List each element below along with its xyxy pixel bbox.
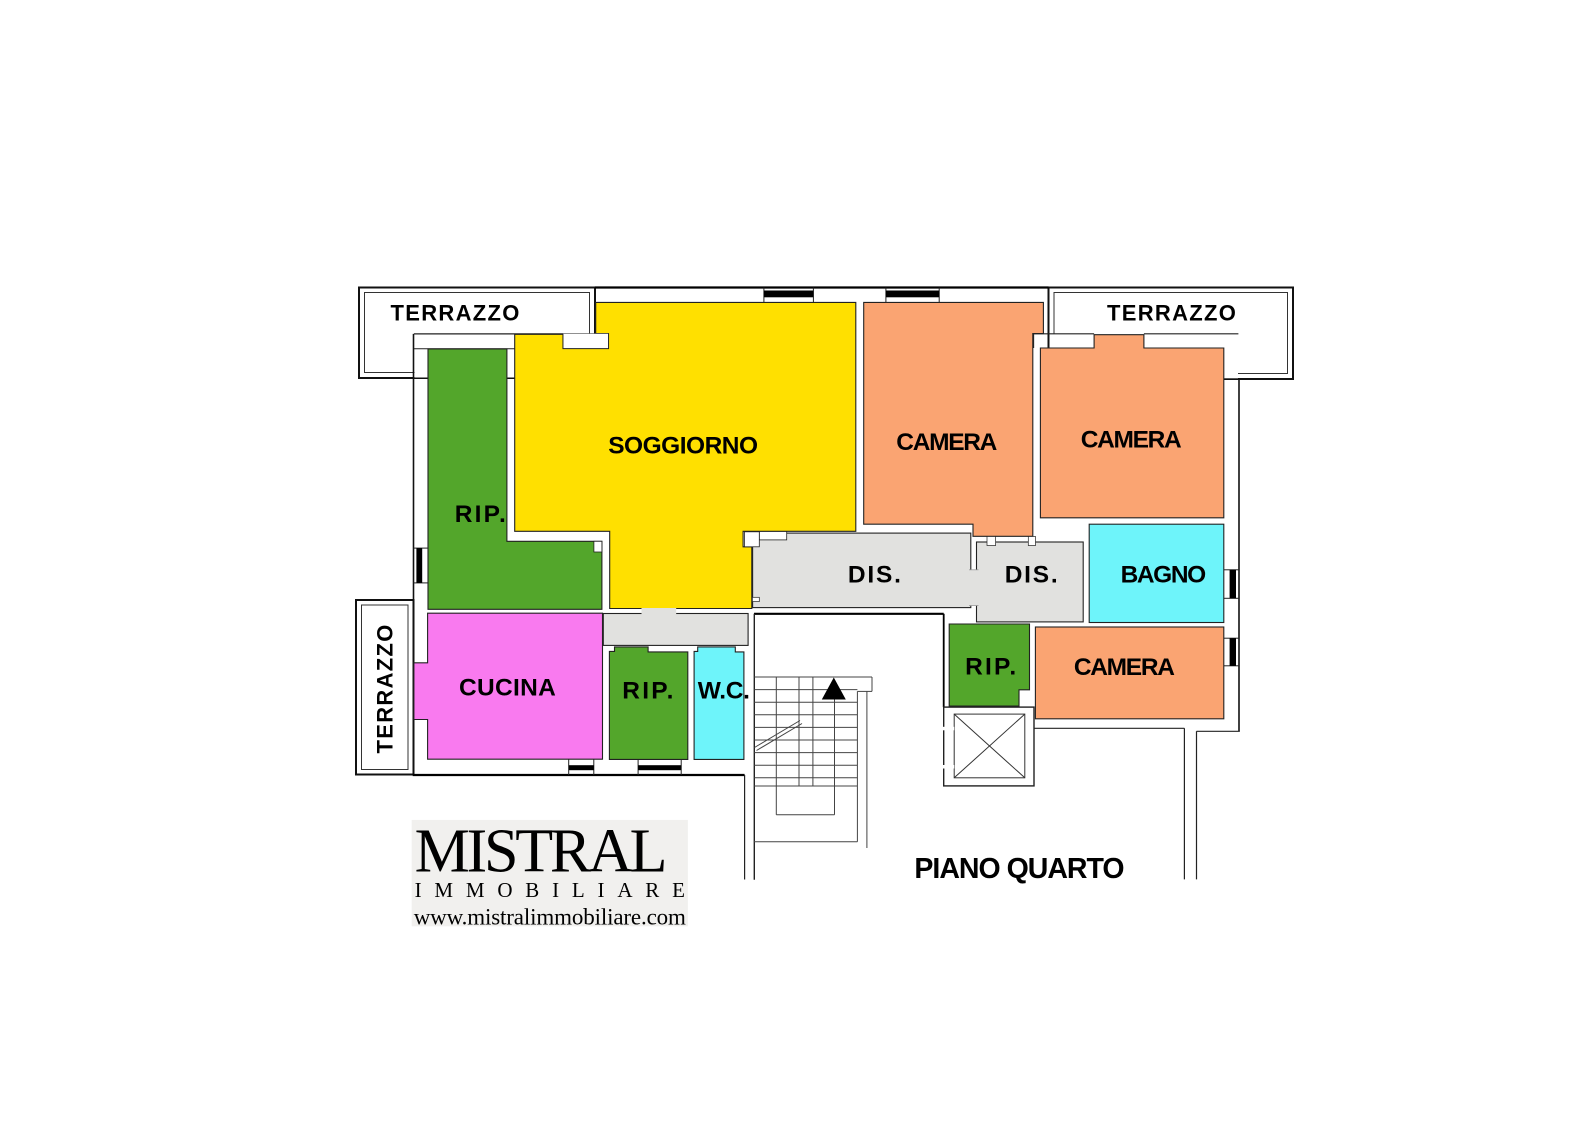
svg-text:TERRAZZO: TERRAZZO [391,301,521,326]
svg-text:PIANO QUARTO: PIANO QUARTO [914,853,1123,885]
svg-text:DIS.: DIS. [1005,562,1060,589]
svg-text:CAMERA: CAMERA [1074,654,1175,681]
svg-text:CAMERA: CAMERA [896,429,997,456]
svg-text:RIP.: RIP. [455,501,508,528]
svg-text:IMMOBILIARE: IMMOBILIARE [415,878,698,902]
svg-text:CUCINA: CUCINA [459,675,556,702]
svg-text:W.C.: W.C. [698,677,750,704]
svg-text:DIS.: DIS. [848,562,903,589]
svg-text:SOGGIORNO: SOGGIORNO [608,433,758,460]
svg-text:RIP.: RIP. [622,677,675,704]
svg-text:TERRAZZO: TERRAZZO [1107,301,1237,326]
svg-text:CAMERA: CAMERA [1081,427,1182,454]
svg-text:RIP.: RIP. [965,654,1018,681]
svg-text:BAGNO: BAGNO [1121,562,1207,589]
svg-text:MISTRAL: MISTRAL [415,818,665,886]
svg-text:www.mistralimmobiliare.com: www.mistralimmobiliare.com [414,905,686,930]
svg-text:TERRAZZO: TERRAZZO [373,623,398,753]
